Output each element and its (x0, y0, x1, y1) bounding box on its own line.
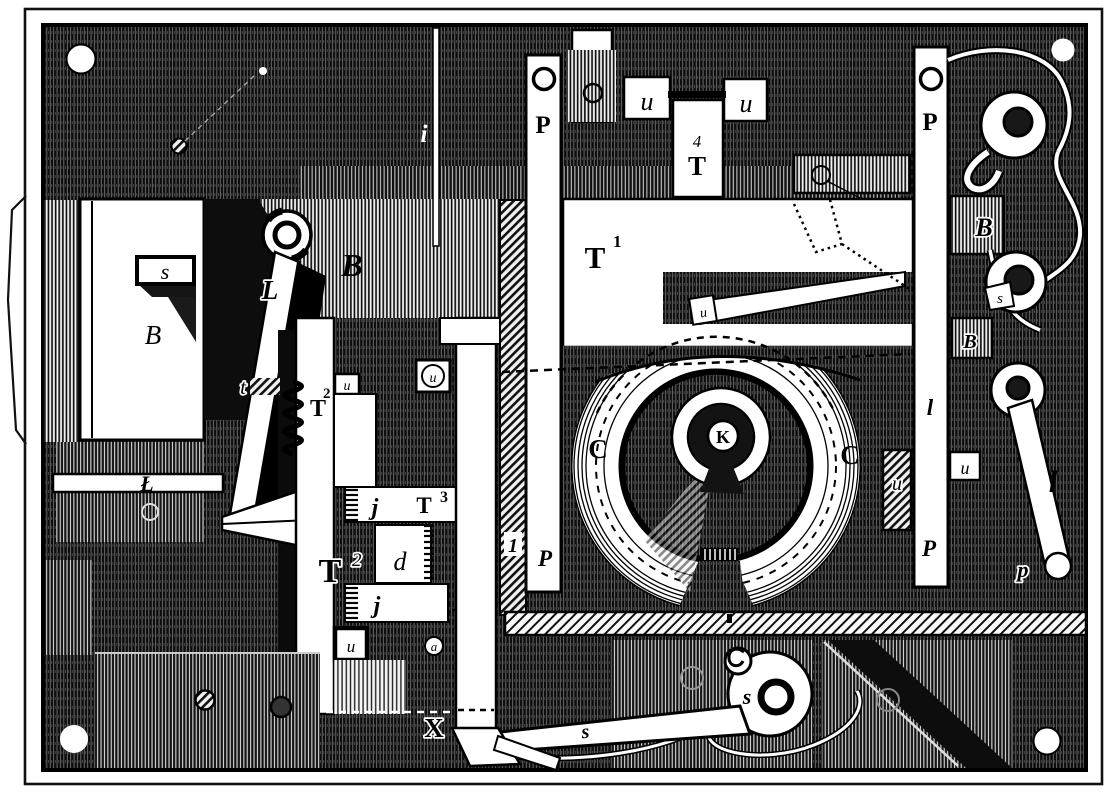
svg-text:1: 1 (613, 232, 622, 251)
svg-text:i: i (421, 121, 428, 148)
svg-text:B: B (974, 213, 992, 242)
svg-text:T: T (585, 240, 606, 275)
svg-text:T: T (319, 553, 342, 590)
svg-text:2: 2 (352, 550, 362, 571)
svg-text:C: C (588, 434, 608, 464)
svg-text:u: u (892, 473, 902, 495)
svg-text:P: P (922, 109, 937, 136)
svg-text:P: P (535, 112, 550, 139)
svg-text:a: a (431, 639, 438, 654)
svg-text:1: 1 (508, 535, 518, 557)
svg-text:u: u (430, 371, 437, 386)
svg-text:s: s (161, 259, 170, 284)
svg-text:B: B (145, 320, 162, 350)
svg-text:2: 2 (323, 386, 331, 402)
svg-text:P: P (537, 546, 553, 571)
svg-text:3: 3 (440, 489, 448, 506)
svg-text:P: P (921, 536, 937, 561)
svg-text:Ł: Ł (139, 471, 153, 496)
svg-text:u: u (961, 458, 970, 478)
svg-text:K: K (716, 427, 730, 447)
svg-text:u: u (641, 87, 654, 116)
svg-text:u: u (347, 637, 356, 656)
svg-text:T: T (416, 493, 431, 518)
svg-text:d: d (394, 547, 408, 576)
svg-text:L: L (261, 275, 279, 305)
svg-text:T: T (688, 151, 706, 181)
svg-text:X: X (424, 713, 444, 743)
svg-text:B: B (340, 247, 362, 283)
svg-text:l: l (1049, 464, 1058, 499)
svg-text:l: l (927, 395, 934, 420)
svg-text:B: B (962, 331, 976, 353)
svg-text:u: u (740, 89, 753, 118)
svg-text:C: C (840, 440, 860, 470)
svg-text:4: 4 (693, 132, 702, 151)
svg-text:p: p (1016, 557, 1029, 582)
svg-text:u: u (344, 379, 351, 394)
svg-text:s: s (997, 291, 1003, 307)
svg-text:s: s (742, 684, 752, 709)
